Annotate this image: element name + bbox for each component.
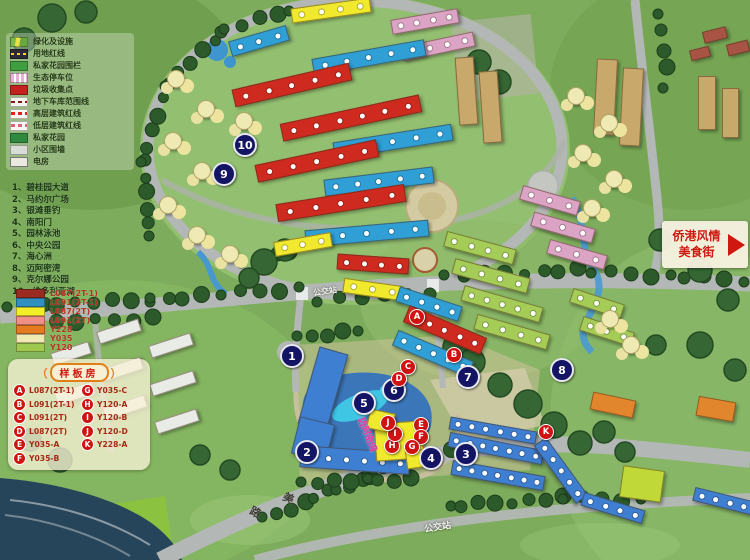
letter-marker-J: J: [380, 415, 396, 431]
unit-type-item: L087(2T): [16, 308, 98, 316]
legend-label: 用地红线: [33, 48, 65, 59]
model-room-entry: BL091(2T-1): [13, 399, 77, 410]
model-room-entry: DL087(2T): [13, 426, 77, 437]
banner-line1: 侨港风情: [665, 229, 728, 245]
legend-swatch-power: [10, 157, 28, 167]
letter-marker-A: A: [409, 309, 425, 325]
unit-type-swatch: [16, 343, 45, 352]
model-room-badge-B: B: [13, 398, 26, 411]
model-room-label: Y228-A: [97, 440, 127, 449]
letter-marker-G: G: [404, 439, 420, 455]
model-room-badge-A: A: [13, 384, 26, 397]
legend-item: 私家花园围栏: [10, 61, 130, 70]
model-room-label: Y035-C: [97, 386, 127, 395]
legend-swatch-garden: [10, 133, 28, 143]
model-room-entry: CL091(2T): [13, 412, 77, 423]
model-room-badge-F: F: [13, 452, 26, 465]
legend-item: 生态停车位: [10, 73, 130, 82]
landmark-item: 9、克尔娜公园: [12, 275, 75, 286]
model-room-label: L091(2T-1): [29, 400, 74, 409]
banner-line2: 美食街: [665, 245, 728, 261]
map-label: 迈阿密湾: [355, 415, 381, 453]
unit-type-item: Y120: [16, 344, 98, 352]
number-marker-10: 10: [233, 133, 257, 157]
model-room-label: Y120-A: [97, 400, 127, 409]
unit-type-item: L091(2T-1): [16, 299, 98, 307]
model-room-entry: HY120-A: [81, 399, 145, 410]
legend-label: 私家花园: [33, 132, 65, 143]
landmark-item: 3、银滩垂钓: [12, 206, 75, 217]
unit-type-swatch: [16, 325, 45, 334]
model-room-label: L087(2T): [29, 427, 67, 436]
legend-swatch-wall: [10, 145, 28, 155]
legend-item: 高层建筑红线: [10, 109, 130, 118]
unit-type-item: L087(2T-1): [16, 290, 98, 298]
legend-label: 生态停车位: [33, 72, 73, 83]
unit-type-label: L091(2T): [50, 316, 90, 325]
model-rooms-title-text: 样板房: [50, 363, 109, 382]
food-street-banner: 侨港风情 美食街: [662, 221, 748, 268]
legend-item: 低层建筑红线: [10, 121, 130, 130]
legend-swatch-lowline: [10, 121, 28, 131]
legend-item: 用地红线: [10, 49, 130, 58]
legend-label: 地下车库范围线: [33, 96, 89, 107]
model-room-entry: AL087(2T-1): [13, 385, 77, 396]
landmark-item: 5、园林泳池: [12, 229, 75, 240]
map-stage: 12345678910ABCDEFGHIJK公交站公交站美路迈阿密湾 绿化及设施…: [0, 0, 750, 560]
number-marker-3: 3: [454, 442, 478, 466]
landmarks-panel: 1、碧桂园大道2、马约尔广场3、银滩垂钓4、南阳门5、园林泳池6、中央公园7、海…: [12, 183, 75, 297]
map-label: 路: [247, 502, 264, 521]
legend-label: 垃圾收集点: [33, 84, 73, 95]
legend-label: 高层建筑红线: [33, 108, 81, 119]
landmark-item: 2、马约尔广场: [12, 195, 75, 206]
legend-item: 私家花园: [10, 133, 130, 142]
unit-type-swatch: [16, 307, 45, 316]
landmark-item: 6、中央公园: [12, 241, 75, 252]
legend-label: 绿化及设施: [33, 36, 73, 47]
number-marker-5: 5: [352, 391, 376, 415]
legend-label: 电房: [33, 156, 49, 167]
model-rooms-title: （ 样板房 ）: [13, 363, 145, 382]
model-room-badge-I: I: [81, 411, 94, 424]
map-label: 公交站: [312, 284, 337, 298]
legend-swatch-fence: [10, 61, 28, 71]
model-rooms-col-right: GY035-CHY120-AIY120-BJY120-DKY228-A: [81, 385, 145, 464]
model-room-entry: JY120-D: [81, 426, 145, 437]
model-room-entry: EY035-A: [13, 439, 77, 450]
model-room-badge-J: J: [81, 425, 94, 438]
unit-type-label: L087(2T): [50, 307, 90, 316]
model-room-label: L087(2T-1): [29, 386, 74, 395]
number-marker-9: 9: [212, 162, 236, 186]
model-room-label: Y120-D: [97, 427, 128, 436]
model-room-badge-K: K: [81, 438, 94, 451]
model-room-badge-H: H: [81, 398, 94, 411]
number-marker-4: 4: [419, 446, 443, 470]
model-room-badge-E: E: [13, 438, 26, 451]
unit-type-swatch: [16, 334, 45, 343]
banner-text: 侨港风情 美食街: [665, 229, 728, 260]
landmark-item: 1、碧桂园大道: [12, 183, 75, 194]
legend-panel: 绿化及设施用地红线私家花园围栏生态停车位垃圾收集点地下车库范围线高层建筑红线低层…: [6, 33, 134, 170]
map-label: 美: [280, 488, 297, 507]
letter-marker-D: D: [391, 371, 407, 387]
legend-swatch-highline: [10, 109, 28, 119]
model-room-label: Y120-B: [97, 413, 127, 422]
model-rooms-col-left: AL087(2T-1)BL091(2T-1)CL091(2T)DL087(2T)…: [13, 385, 77, 464]
landmark-item: 7、海心洲: [12, 252, 75, 263]
unit-type-swatch: [16, 316, 45, 325]
unit-type-label: Y035: [50, 334, 73, 343]
legend-item: 电房: [10, 157, 130, 166]
number-marker-8: 8: [550, 358, 574, 382]
model-room-entry: GY035-C: [81, 385, 145, 396]
unit-type-swatch: [16, 289, 45, 298]
model-room-badge-C: C: [13, 411, 26, 424]
unit-type-item: Y228: [16, 326, 98, 334]
number-marker-2: 2: [295, 440, 319, 464]
unit-type-item: L091(2T): [16, 317, 98, 325]
legend-item: 地下车库范围线: [10, 97, 130, 106]
unit-type-label: Y228: [50, 325, 73, 334]
legend-item: 小区围墙: [10, 145, 130, 154]
arrow-right-icon: [728, 234, 745, 256]
model-room-label: Y035-A: [29, 440, 59, 449]
unit-types-panel: L087(2T-1)L091(2T-1)L087(2T)L091(2T)Y228…: [16, 290, 98, 352]
model-room-entry: IY120-B: [81, 412, 145, 423]
landmark-item: 8、迈阿密湾: [12, 264, 75, 275]
model-room-entry: FY035-B: [13, 453, 77, 464]
title-paren-open: （: [37, 365, 48, 381]
number-marker-1: 1: [280, 344, 304, 368]
unit-type-label: L087(2T-1): [50, 289, 98, 298]
unit-type-swatch: [16, 298, 45, 307]
model-room-badge-G: G: [81, 384, 94, 397]
legend-item: 绿化及设施: [10, 37, 130, 46]
model-room-entry: KY228-A: [81, 439, 145, 450]
map-label: 公交站: [423, 518, 452, 535]
model-rooms-panel: （ 样板房 ） AL087(2T-1)BL091(2T-1)CL091(2T)D…: [8, 359, 150, 470]
model-room-badge-D: D: [13, 425, 26, 438]
legend-swatch-garage: [10, 97, 28, 107]
legend-item: 垃圾收集点: [10, 85, 130, 94]
number-marker-7: 7: [456, 365, 480, 389]
title-paren-close: ）: [111, 365, 122, 381]
legend-swatch-garbage: [10, 85, 28, 95]
legend-label: 低层建筑红线: [33, 120, 81, 131]
legend-swatch-redline-dark: [10, 49, 28, 59]
landmark-item: 4、南阳门: [12, 218, 75, 229]
unit-type-label: L091(2T-1): [50, 298, 98, 307]
letter-marker-B: B: [446, 347, 462, 363]
unit-type-label: Y120: [50, 343, 73, 352]
unit-type-item: Y035: [16, 335, 98, 343]
model-room-label: Y035-B: [29, 454, 59, 463]
legend-swatch-mottle: [10, 37, 28, 47]
legend-label: 小区围墙: [33, 144, 65, 155]
letter-marker-K: K: [538, 424, 554, 440]
legend-swatch-parking: [10, 73, 28, 83]
legend-label: 私家花园围栏: [33, 60, 81, 71]
model-room-label: L091(2T): [29, 413, 67, 422]
